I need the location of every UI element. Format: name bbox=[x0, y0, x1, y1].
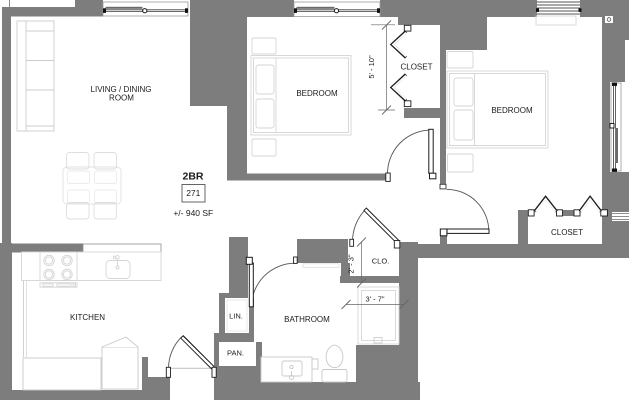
svg-text:KITCHEN: KITCHEN bbox=[70, 313, 105, 322]
svg-text:CLOSET: CLOSET bbox=[551, 228, 583, 237]
svg-text:2' - 3": 2' - 3" bbox=[347, 254, 356, 273]
svg-text:BEDROOM: BEDROOM bbox=[296, 89, 338, 98]
svg-text:271: 271 bbox=[186, 188, 200, 198]
svg-text:2BR: 2BR bbox=[182, 171, 203, 183]
svg-text:CLOSET: CLOSET bbox=[400, 63, 432, 72]
svg-text:BATHROOM: BATHROOM bbox=[284, 315, 330, 324]
svg-text:ROOM: ROOM bbox=[109, 94, 134, 103]
svg-text:PAN.: PAN. bbox=[227, 349, 244, 358]
svg-text:CLO.: CLO. bbox=[372, 257, 390, 266]
svg-text:5' - 10": 5' - 10" bbox=[367, 55, 376, 79]
svg-text:LIN.: LIN. bbox=[229, 312, 243, 321]
svg-text:+/- 940 SF: +/- 940 SF bbox=[173, 208, 213, 218]
svg-text:BEDROOM: BEDROOM bbox=[491, 106, 533, 115]
svg-text:3' - 7": 3' - 7" bbox=[365, 295, 384, 304]
